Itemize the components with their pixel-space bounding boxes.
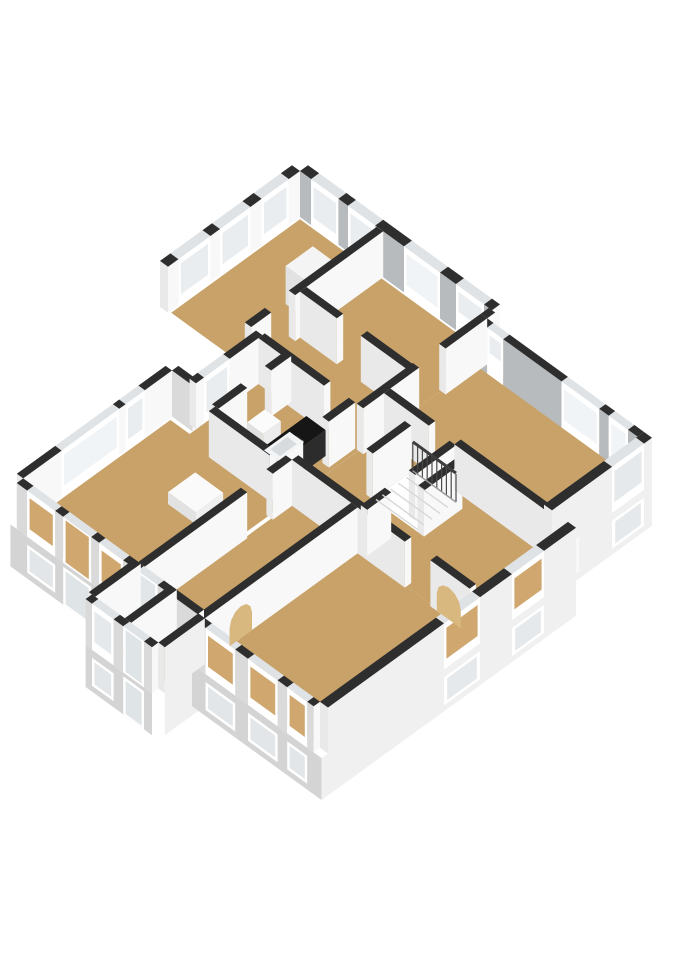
ext-nw-wall-sw-face xyxy=(160,261,168,313)
ext-sw-annex-wall-sw-face xyxy=(86,599,92,650)
rightwing-west-wall-sw-face xyxy=(357,404,363,455)
floorplan-canvas xyxy=(0,0,679,960)
ext-sw-left-wall-sw-face xyxy=(91,537,99,589)
ext-nw-wall-se-face xyxy=(289,171,300,225)
ext-nw-mid-wall-se-face xyxy=(196,378,204,430)
ext-sw-bottom-wall-se-face xyxy=(314,702,320,753)
ext-sw-bottom-wall-sw-face xyxy=(235,650,248,705)
ext-sw-bottom-wall-sw-face xyxy=(307,702,313,753)
ext-se-annex-wall-sw-face xyxy=(158,643,164,694)
ext-ne-wall-sw-face xyxy=(300,171,311,225)
ext-sw-left-wall-sw-face xyxy=(55,511,63,563)
ext-ne2-wall-sw-face xyxy=(599,409,609,462)
ext-se-right-wall-se-face xyxy=(644,438,652,490)
mid-divider-wall-se-face xyxy=(405,537,411,588)
midroom-divider-wall-sw-face xyxy=(361,505,367,556)
ext-nw-mid-wall-sw-face xyxy=(190,379,196,430)
floorplan-3d-view xyxy=(0,0,679,960)
stair-west-wall-sw-face xyxy=(366,449,372,500)
rightwing-west-wall-sw-face xyxy=(439,344,445,395)
ext-ne-wall-sw-face xyxy=(338,199,348,252)
ext-sw-annex-wall-sw-face xyxy=(114,619,124,672)
hall-wall-se-face xyxy=(337,314,343,365)
ext-nw-wall-se-face xyxy=(168,259,178,313)
ext-sw-annex-wall-sw-face xyxy=(144,641,152,693)
ext-nw-wall-se-face xyxy=(210,229,220,282)
ext-sw-left-wall-sw-face xyxy=(17,483,27,537)
bathroom-west-wall-sw-face xyxy=(265,366,271,417)
ext-sw-annex-wall-se-face xyxy=(152,643,158,694)
leftbedroom-east-wall-sw-face xyxy=(266,469,272,520)
ext-nw-wall-se-face xyxy=(250,199,261,253)
bedroom-divider-wall-sw-face xyxy=(289,291,295,342)
ext-se-bottom-wall-sw-face xyxy=(320,702,328,754)
midroom-divider-wall-sw-face xyxy=(409,470,415,521)
ext-nw-left-wall-se-face xyxy=(119,404,125,455)
ext-sw-bottom-wall-sw-face xyxy=(278,680,288,733)
